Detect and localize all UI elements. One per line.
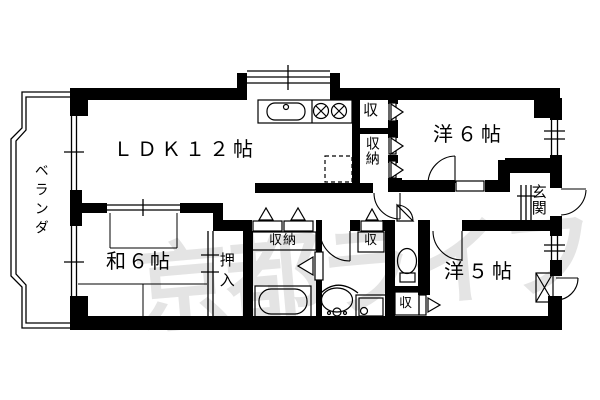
refrigerator-space [325,156,352,182]
room-label-ldk: ＬＤＫ１２帖 [113,139,257,160]
floorplan-drawing [0,0,600,400]
washer-pan-icon [356,295,386,319]
x-storage-icon [536,273,553,302]
storage-label-kitchen-top: 収 [363,103,378,119]
stove-icon [314,104,347,119]
room-label-veranda: ベランダ [33,163,48,239]
storage-label-kitchen-bottom: 収納 [364,136,379,166]
storage-label-hall-small: 収 [364,234,377,248]
room-label-japanese6: 和６帖 [106,251,172,272]
sink-icon [267,103,305,120]
bathtub-icon [255,286,311,317]
floorplan: 京都ライフ [0,0,600,400]
bay-window [247,65,330,90]
closet-label-oshiire: 押入 [218,252,234,292]
room-label-entrance: 玄関 [530,184,546,216]
room-label-western5: 洋５帖 [444,261,516,282]
washbasin-icon [318,285,358,316]
room-label-western6: 洋６帖 [433,124,505,145]
storage-label-hall-wide: 収納 [269,234,297,248]
storage-label-toilet: 収 [399,297,412,311]
toilet-icon [398,249,417,283]
